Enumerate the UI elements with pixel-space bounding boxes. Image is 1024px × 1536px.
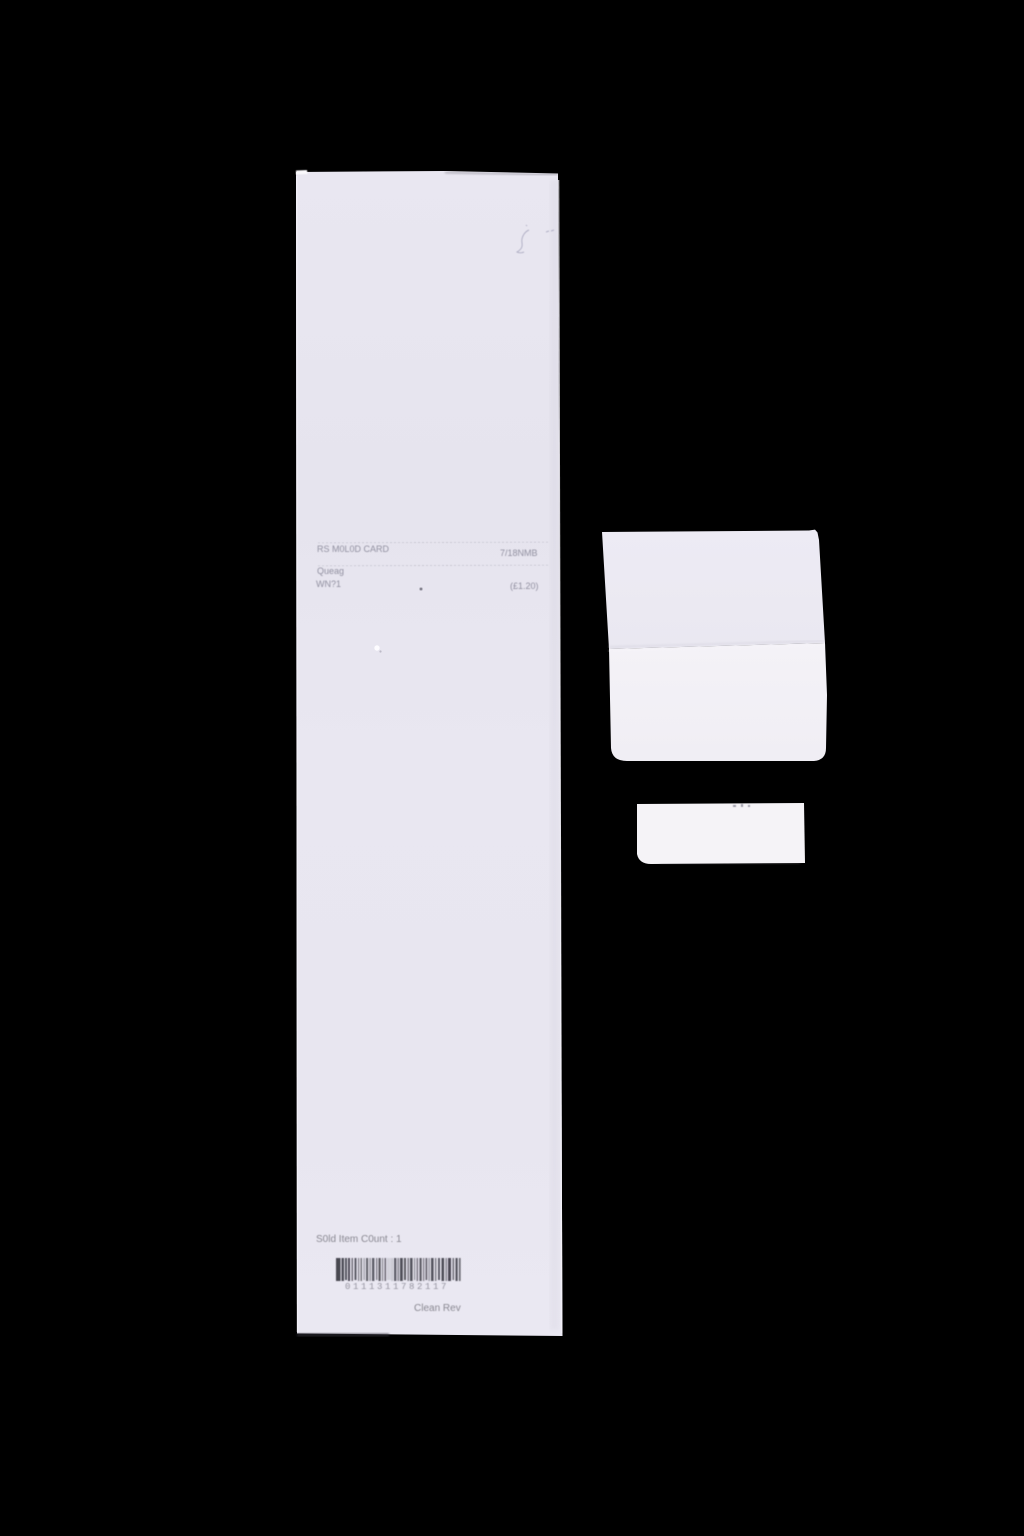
svg-text:Clean Rev: Clean Rev xyxy=(414,1303,461,1314)
svg-text:0111311782117: 0111311782117 xyxy=(345,1282,449,1292)
svg-text:Queag: Queag xyxy=(317,566,344,576)
svg-text:WN?1: WN?1 xyxy=(316,579,341,589)
svg-text:S0ld Item C0unt : 1: S0ld Item C0unt : 1 xyxy=(316,1234,402,1245)
svg-text:7/18NMB: 7/18NMB xyxy=(500,548,538,558)
svg-text:RS M0L0D CARD: RS M0L0D CARD xyxy=(317,544,390,554)
svg-text:(£1.20): (£1.20) xyxy=(510,581,539,591)
